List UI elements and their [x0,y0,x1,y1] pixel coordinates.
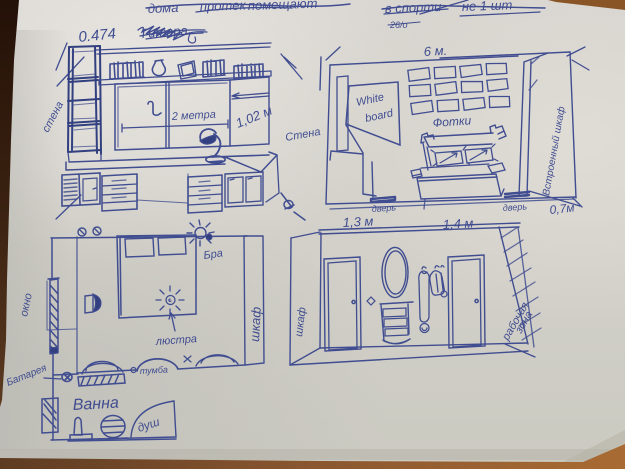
svg-text:Фотки: Фотки [432,113,472,130]
svg-text:2 метра: 2 метра [171,109,217,123]
svg-text:протек: протек [200,0,247,14]
svg-text:тумба: тумба [140,365,169,376]
svg-text:6 м.: 6 м. [423,43,447,59]
svg-text:дверь: дверь [502,201,527,213]
svg-text:шкаф: шкаф [247,306,264,342]
svg-text:0,7м: 0,7м [549,200,575,217]
svg-text:дверь: дверь [371,202,396,214]
svg-text:1,3 м: 1,3 м [342,213,373,230]
svg-text:Ванна: Ванна [72,395,119,414]
